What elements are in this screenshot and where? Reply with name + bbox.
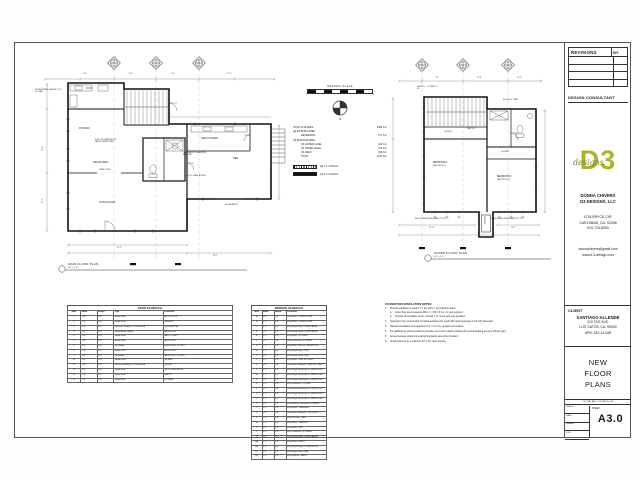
job-field: JOB (565, 431, 589, 440)
note-item: 3.Maintain foundation vent clearance of … (385, 326, 525, 329)
note-subitem: a.Under floor area measures 990 s.f. / 1… (385, 312, 525, 315)
wall-swatch-hatched (293, 165, 317, 170)
table-row: Q3'-0"4'-0"Vinyl Single Hung Egress - BE… (252, 393, 327, 398)
north-label: N (293, 117, 387, 121)
area-tabulation: TOTAL SITE AREA2999 S.F.(E) EXISTING ARE… (293, 126, 387, 160)
table-cell: Vinyl Single Hung Egress - BEDROOM 2 (286, 397, 327, 402)
upper-floor-plan: WDW R.O. + 7'-0" ABV T.O. S.F. (N) 5040 … (387, 57, 551, 269)
schedule-table: MarkWidthHeightTypeComments13'-0"6'-8"Si… (67, 310, 233, 383)
dimension-lines (392, 80, 547, 237)
room-label-kitchen: KITCHEN (79, 127, 90, 130)
sheet-number: A3.0 (590, 413, 631, 425)
pantry-note: PULL OUT DRAWERS FOR PANTRY UNDER STAIR (95, 139, 121, 143)
grid-bubbles (108, 57, 206, 70)
safety-glass-note: TEMP. SAFETY GLASS WDW. MIN. OPEN. (183, 152, 209, 156)
door-schedule: DOOR SCHEDULEMarkWidthHeightTypeComments… (67, 305, 233, 383)
footer-fields: SCALE DATE DRAWN JOB (565, 406, 590, 438)
revisions-table: REVISIONS BY (568, 47, 628, 87)
table-row: D3'-0"4'-0"Vinyl Single Hung - DINING AR… (252, 330, 327, 335)
notes-list: 1.Provide ventilation to equal 1 s.f. pe… (385, 308, 525, 344)
firm-contact: donnachivers@gmail.com www.d-3-design.co… (565, 247, 631, 259)
dim-text: 13'-6" (477, 77, 482, 79)
table-row: P3'-0"4'-0"Vinyl Single Hung Egress - BE… (252, 388, 327, 393)
sheet-canvas: (N) WDW RAILING HEIGHT @ 42" O.C. MAX KI… (0, 0, 640, 480)
note-item: 6.Crawl access to be a minimum 18" x 24"… (385, 341, 525, 344)
dim-text: 13'-5" (511, 227, 516, 229)
stairs (125, 91, 168, 124)
plan-title-marker (59, 266, 247, 272)
table-row: K5'-0"4'-0"Vinyl Slider Tempered - NEW K… (252, 364, 327, 369)
chimney-label: CHIMNEY (482, 216, 484, 224)
table-cell: 2'-0" (274, 455, 286, 460)
graphic-scale-ticks: 4 2 0 4 8 (306, 94, 374, 96)
d3-logo: D3 designs (565, 145, 631, 181)
main-floor-plan: (N) WDW RAILING HEIGHT @ 42" O.C. MAX KI… (35, 53, 287, 281)
sheet-title: NEW FLOOR PLANS (575, 357, 621, 391)
table-row: DD2'-0"2'-0"Vinyl Obscure - BATH (252, 455, 327, 460)
dim-text: 21'-5" (117, 247, 122, 249)
sheet-number-cell: SHEET A3.0 (590, 406, 631, 438)
dim-text: 9'-2" (83, 73, 87, 75)
sheet-border: (N) WDW RAILING HEIGHT @ 42" O.C. MAX KI… (14, 42, 631, 438)
table-row: R3'-0"4'-0"Vinyl Single Hung Egress - BE… (252, 397, 327, 402)
note-item: 5.Access between crawl and existing foun… (385, 336, 525, 339)
table-cell: Vinyl Single Hung Egress - BEDROOM 2 (286, 388, 327, 393)
wall-swatch-solid (293, 172, 317, 177)
table-cell: 6'-8" (97, 378, 114, 383)
wall-legend-row: (E) 2 X 4 WALLS (293, 165, 387, 170)
firm-name-line2: D3 DESIGNS, LLC (565, 199, 631, 205)
logo-script-text: designs (573, 158, 604, 167)
revision-row (569, 80, 627, 87)
dim-text: 16'-7" (213, 255, 218, 257)
wall-legend: (E) 2 X 4 WALLS(N) 2 X 6 WALLS (293, 165, 387, 177)
note-item: 2.Openings to be covered with corrosion-… (385, 321, 525, 324)
table-cell: 2'-0" (262, 455, 274, 460)
crawl-access-note: 15" X 24" CRAWL ACCESS (185, 175, 207, 177)
bedroom2-clg-label: VAULTED CLG (497, 179, 510, 181)
table-cell: Vinyl Slider Tempered - NEW KITCHEN (286, 364, 327, 369)
revision-row (569, 72, 627, 80)
exterior-stair (271, 129, 285, 163)
dim-text: 6'-5" (171, 73, 175, 75)
egress-note: (N) DBL GLAZED WDW EGRESS TYP OF 3 (415, 219, 447, 221)
table-row: 142'-6"6'-8"Single-FlushSTORAGE (68, 378, 233, 383)
pier-marks (419, 247, 511, 249)
schedule-table: MarkWidthHeightCommentsA4'-0"3'-6"Vinyl … (251, 310, 327, 460)
flat-clg-label: FLAT CLG (467, 128, 475, 130)
pier-marks (130, 263, 181, 265)
dim-text: 10'-0" (517, 77, 522, 79)
dim-text: 16'-11" (429, 227, 435, 229)
date-field: DATE (565, 414, 589, 423)
client-section: CLIENT SANTIAGO ALLENDE 310 TAIT AVE. LO… (565, 305, 631, 347)
room-label-den: DEN (233, 157, 238, 160)
table-row: BB3'-0"4'-0"Vinyl Single Hung - LIVING R… (252, 445, 327, 450)
bedroom1-clg-label: VAULTED CLG (433, 165, 446, 167)
table-cell: Single-Flush (114, 378, 164, 383)
note-subitem: b.Provide 14 foundation vents - At least… (385, 316, 525, 319)
table-cell: DD (252, 455, 263, 460)
table-cell: Vinyl Single Hung Egress - BEDROOM 1 (286, 373, 327, 378)
stairs (426, 98, 486, 126)
grid-bubbles (416, 59, 515, 72)
main-floor-plan-drawing (35, 53, 287, 281)
sheet-label: SHEET (590, 406, 631, 410)
note-item: 1.Provide ventilation to equal 1 s.f. pe… (385, 308, 525, 311)
table-row: Z3'-0"4'-0"Vinyl Single Hung - DINING AR… (252, 436, 327, 441)
main-plan-scale: 1/4" = 1'-0" (68, 267, 78, 270)
interior-walls (424, 109, 536, 232)
scale-field: SCALE (565, 406, 589, 415)
railing-note: (N) WDW RAILING HEIGHT @ 42" O.C. MAX (35, 89, 62, 93)
table-cell: 14 (68, 378, 81, 383)
table-row: U5'-0"4'-0"Vinyl Slider Tempered - (N) 5… (252, 412, 327, 417)
notes-title: FOUNDATION VENTILATION NOTES: (385, 303, 525, 306)
closet-label: CLOSET (501, 151, 509, 154)
foundation-notes: FOUNDATION VENTILATION NOTES: 1.Provide … (385, 303, 525, 344)
titleblock-footer: 310 TAIT AVE, LOS GATOS, CA SCALE DATE D… (565, 399, 631, 437)
dim-text: 17'-6" (227, 73, 232, 75)
firm-address: 4716 BRYCE CIR. CARLSBAD, CA. 92008 510-… (565, 215, 631, 232)
upper-floor-plan-drawing (387, 57, 551, 267)
legend-panel: GRAPHIC SCALE 4 2 0 4 8 N TOTAL SITE ARE (293, 85, 387, 176)
window-marks (66, 119, 257, 233)
scale-tick: 0 (340, 94, 341, 96)
dim-text: 7'-6" (435, 77, 439, 79)
kitchen-fixtures (70, 85, 108, 107)
area-row: TOTAL1101 S.F. (293, 155, 387, 159)
room-label-living: LIVING ROOM (99, 201, 115, 204)
room-label-dining: DINING AREA (93, 161, 108, 164)
dim-text: 8'-0" (129, 73, 133, 75)
scale-tick: 2 (323, 94, 324, 96)
firm-name: DONNA CHIVERS D3 DESIGNS, LLC (565, 193, 631, 206)
revision-row (569, 65, 627, 73)
table-row: M3'-0"4'-0"Vinyl Single Hung Egress - BE… (252, 373, 327, 378)
scale-tick: 8 (373, 94, 374, 96)
window-schedule: WINDOW SCHEDULEMarkWidthHeightCommentsA4… (251, 305, 327, 460)
closet-label: CLOSET (444, 131, 452, 134)
client-apn: APN: 510-14-068 (565, 331, 631, 336)
table-cell: Vinyl Obscure - BATH (286, 455, 327, 460)
table-cell: Vinyl Single Hung Egress - BEDROOM 1 (286, 369, 327, 374)
gas-meter-note: (E) GAS METER (225, 204, 238, 206)
bath-fixtures (149, 140, 183, 178)
table-cell: Vinyl Single Hung Egress - BEDROOM 2 (286, 393, 327, 398)
wdw-ro-note: WDW R.O. + 7'-0" ABV T.O. S.F. (417, 86, 441, 90)
wall-legend-row: (N) 2 X 6 WALLS (293, 172, 387, 177)
footer-project-line: 310 TAIT AVE, LOS GATOS, CA (565, 400, 631, 405)
title-block: REVISIONS BY DESIGN CONSULTANT D3 design… (564, 43, 631, 437)
grid-lines (114, 68, 199, 261)
revisions-header: REVISIONS (569, 48, 611, 56)
table-row: L3'-0"4'-0"Vinyl Single Hung Egress - BE… (252, 369, 327, 374)
client-label: CLIENT (565, 306, 631, 313)
scale-tick: 4 (356, 94, 357, 96)
temp-glass-note: (N) 5040 SL. TEMP. (503, 99, 529, 101)
new-kitchen-fixtures (191, 126, 247, 132)
room-label-new-kitchen: NEW KITCHEN (201, 137, 218, 140)
table-cell: STORAGE (163, 378, 232, 383)
scale-tick: 4 (306, 94, 307, 96)
revision-row (569, 57, 627, 65)
drawn-field: DRAWN (565, 423, 589, 432)
table-row: C3'-0"4'-0"Vinyl Single Hung - DINING AR… (252, 325, 327, 330)
dim-text: 13'-2" (42, 198, 44, 203)
cased-open-label: CASED OPEN (99, 169, 110, 171)
table-cell: 2'-6" (81, 378, 98, 383)
revisions-by-header: BY (611, 48, 627, 56)
note-item: 4.For additions to existing residence pr… (385, 331, 525, 334)
exterior-walls (68, 83, 271, 231)
dim-text: 16'-0" (42, 146, 44, 151)
dimension-lines (44, 78, 281, 255)
firm-website: www.d-3-design.com (565, 253, 631, 259)
north-arrow-icon (293, 99, 387, 118)
firm-phone: 510-716-8300 (565, 226, 631, 232)
design-consultant-label: DESIGN CONSULTANT (568, 95, 628, 103)
door-swings (105, 103, 250, 231)
sheet-title-section: NEW FLOOR PLANS (565, 346, 631, 400)
table-row: G2'-0"2'-0"Vinyl Slider Obscure - BATHRO… (252, 345, 327, 350)
graphic-scale-label: GRAPHIC SCALE (293, 85, 387, 88)
upper-plan-scale: 1/4" = 1'-0" (434, 256, 444, 259)
egress-note: (N) DBL GLAZED WDW EGRESS TYP OF 3 (491, 219, 523, 221)
